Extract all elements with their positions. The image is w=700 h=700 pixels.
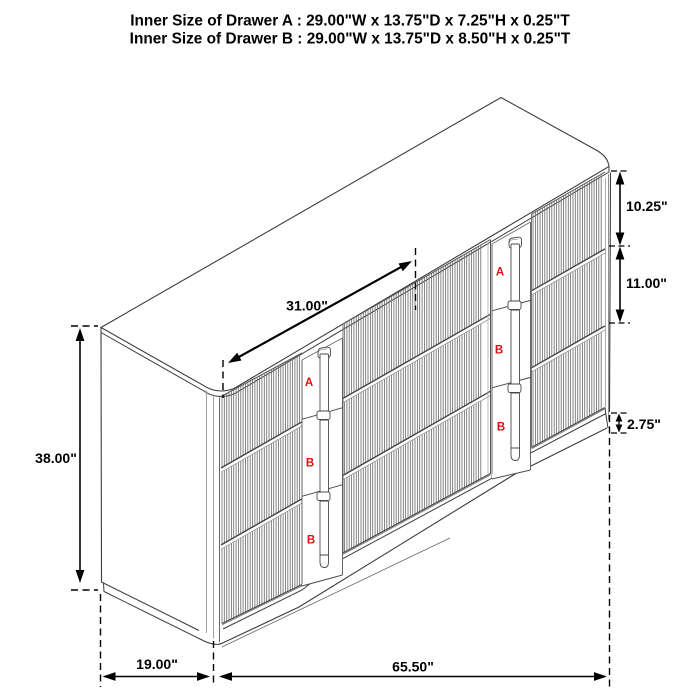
- svg-text:10.25": 10.25": [626, 198, 668, 214]
- svg-text:B: B: [306, 458, 314, 470]
- svg-text:31.00": 31.00": [286, 298, 328, 314]
- svg-text:A: A: [496, 267, 504, 279]
- svg-text:Inner Size of Drawer A : 29.00: Inner Size of Drawer A : 29.00"W x 13.75…: [130, 13, 570, 30]
- svg-text:B: B: [495, 345, 503, 357]
- svg-text:2.75": 2.75": [627, 416, 661, 432]
- svg-text:11.00": 11.00": [626, 275, 667, 291]
- svg-text:A: A: [305, 377, 313, 389]
- svg-text:38.00": 38.00": [35, 450, 77, 466]
- svg-text:Inner Size of Drawer B : 29.00: Inner Size of Drawer B : 29.00"W x 13.75…: [130, 31, 571, 48]
- svg-text:B: B: [307, 535, 315, 547]
- svg-text:65.50": 65.50": [392, 659, 434, 675]
- svg-text:B: B: [497, 422, 505, 434]
- svg-text:19.00": 19.00": [136, 656, 178, 672]
